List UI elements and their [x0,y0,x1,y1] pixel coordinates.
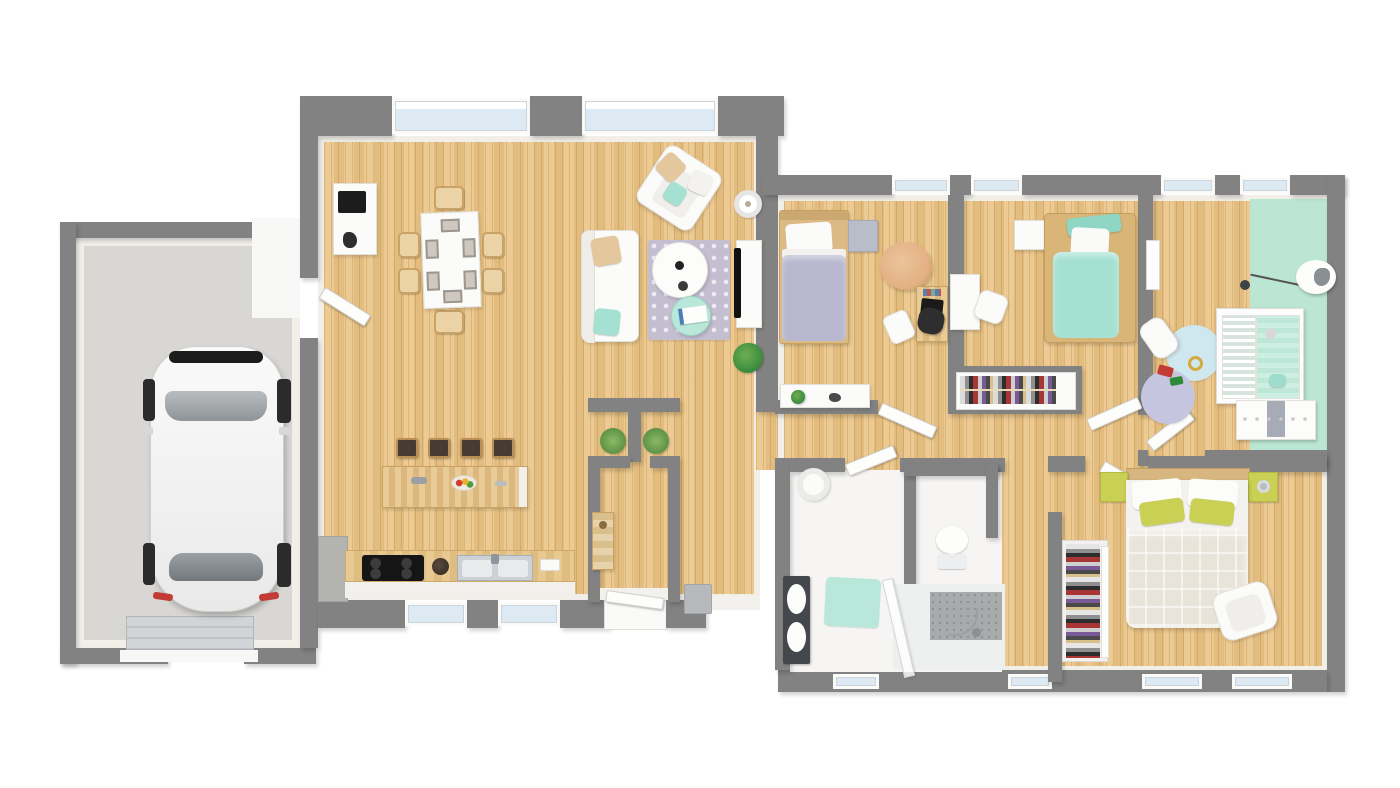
toilet [936,526,968,570]
tv [734,248,741,318]
bedroom1-nightstand [848,220,878,252]
living-window-top-2 [582,98,718,134]
kitchen-counter [345,550,575,582]
nook-window [1008,674,1052,689]
bedroom2-bed [1044,213,1136,343]
vanity-counter [783,576,810,664]
living-wall-left-upper [300,136,318,278]
floor-plan [0,0,1400,788]
crib [1216,308,1304,404]
garage-wall-top [60,222,256,238]
wing-wall-top-4 [1215,175,1240,195]
bedroom1-bed [779,210,849,344]
coffee-table-decor-1 [675,261,684,270]
vanity-sink-2 [787,622,806,652]
toilet-tank [938,554,966,569]
nursery-wall-bottom-left [1138,450,1148,466]
garage-door [126,616,254,650]
dining-chair-right-2 [482,268,504,294]
book [678,305,708,325]
microwave [338,191,366,213]
car-wheel-front-left [143,379,155,421]
cooktop [362,555,424,581]
living-wall-top-right [718,96,784,136]
master-wardrobe [1062,540,1108,662]
shoe-cabinet-item [599,521,607,529]
nursery-dresser [1236,400,1316,440]
floor-lamp-pole [745,201,751,207]
shower-head [972,628,981,637]
bedroom2-window [971,177,1022,194]
wing-wall-right [1327,175,1345,692]
placemat-right-1 [462,238,476,257]
crib-rail-section [1222,315,1256,399]
dining-chair-left-1 [398,232,420,258]
dining-chair-left-2 [398,268,420,294]
bedroom2-closet-clothes [960,376,1056,404]
closet-rail [960,389,1056,391]
dining-chair-bottom [434,310,464,334]
sofa-pillow-mint [593,308,622,337]
wc-wall-left [904,464,916,592]
laundry-basket [797,468,830,501]
master-pillow-green-2 [1189,498,1235,526]
pendant-lamp-hook [1240,280,1250,290]
car-wheel-rear-right [277,543,291,587]
wardrobe-door [1101,546,1109,658]
placemat-top [441,219,460,233]
nursery-window-1 [1161,177,1215,194]
entry-plant-left [600,428,626,454]
sofa-pillow-beige [590,235,622,267]
shelf-plant [791,390,805,404]
porch [252,218,300,318]
shoe-cabinet [592,512,614,570]
master-nightstand-right [1248,472,1278,502]
sofa [581,230,639,342]
wardrobe-wall-stub [1048,512,1062,682]
coffee-table [652,242,708,298]
sideboard-decor [343,232,357,248]
sink-basin-right [498,560,528,577]
living-wall-bottom-1 [318,600,405,628]
crib-plush-toy [1265,328,1276,339]
floor-lamp [734,190,762,218]
kitchen-sink [457,555,533,581]
master-window-2 [1232,674,1292,689]
kitchen-window-1 [405,602,467,626]
bedside-lamp [1257,480,1270,493]
bar-stool-4 [492,438,514,458]
pepper-grinder [432,558,449,575]
living-wall-left-lower [300,338,318,648]
car-wheel-front-right [277,379,291,423]
living-wall-bottom-2 [467,600,498,628]
dresser-knobs [1241,417,1311,421]
master-window-1 [1142,674,1202,689]
car-rear-window [169,553,263,581]
island-end-panel [519,467,527,507]
kitchen-window-2 [498,602,560,626]
garage-door-threshold [120,650,258,662]
nursery-window-2 [1240,177,1290,194]
master-nightstand-left [1100,472,1128,502]
car-mirror-left [141,427,153,435]
wing-wall-top-2 [950,175,971,195]
master-wall-top-left [1048,456,1085,472]
car [150,346,284,612]
nursery-rug-lavender [1141,370,1195,424]
placemat-left-2 [426,271,440,290]
car-mirror-right [279,427,291,435]
wc-wall-right [986,464,998,538]
kitchen-corner-counter [318,536,348,602]
nursery-wall-frame [1146,240,1160,290]
kitchen-island [382,466,528,508]
dining-table [420,211,481,309]
vanity-sink-1 [787,584,806,614]
placemat-left-1 [425,239,439,258]
entry-wall-lower-left [588,456,630,468]
entry-wall-side-right [668,468,680,602]
side-table [671,296,711,336]
garage-wall-left [60,222,76,664]
bedroom1-duvet [782,255,846,341]
bar-stool-1 [396,438,418,458]
bedroom1-window [892,177,950,194]
living-wall-top-left [300,96,392,136]
bar-stool-3 [460,438,482,458]
island-utensil [495,481,507,486]
bathroom-window [833,674,879,689]
crib-pillow [1269,374,1286,387]
desk-books [923,289,941,296]
bath-mat [824,577,881,629]
living-wall-bottom-3 [560,600,610,628]
bean-bag [880,242,932,290]
car-windshield [165,391,267,421]
wing-wall-top-1 [762,175,892,195]
master-pillow-green-1 [1139,497,1186,527]
kitchen-counter-front [345,582,575,598]
radiator-box [684,584,712,614]
bedroom1-headboard [780,211,848,220]
sink-faucet [491,554,499,564]
living-window-top-1 [392,98,530,134]
coffee-table-decor-2 [678,281,688,291]
entry-wall-lower-right [650,456,680,468]
bedroom1-shelf [780,384,870,408]
toy-ring [1188,356,1203,371]
master-armchair-seat [1224,592,1268,634]
crib-mattress [1256,315,1300,399]
sideboard [333,183,377,255]
counter-items [540,559,560,571]
dining-chair-top [434,186,464,210]
entry-wall-stem [628,412,641,462]
pendant-lamp-inner [1314,268,1330,286]
wardrobe-clothes [1066,544,1100,658]
living-wall-top-middle [530,96,582,136]
dining-chair-right-1 [482,232,504,258]
shelf-figurine [829,393,841,402]
placemat-bottom [443,290,462,304]
placemat-right-2 [463,270,477,289]
car-roof-strip [169,351,263,363]
pendant-lamp-shade [1296,260,1336,294]
bedroom2-duvet [1053,252,1119,338]
fruit-bowl [451,475,477,491]
island-faucet [411,477,427,484]
entry-wall-top [588,398,680,412]
sink-basin-left [462,560,492,577]
wc-wall-top [904,464,998,476]
bar-stool-2 [428,438,450,458]
wing-wall-top-3 [1022,175,1161,195]
toilet-bowl [936,526,968,554]
car-wheel-rear-left [143,543,155,585]
entry-plant-right [643,428,669,454]
